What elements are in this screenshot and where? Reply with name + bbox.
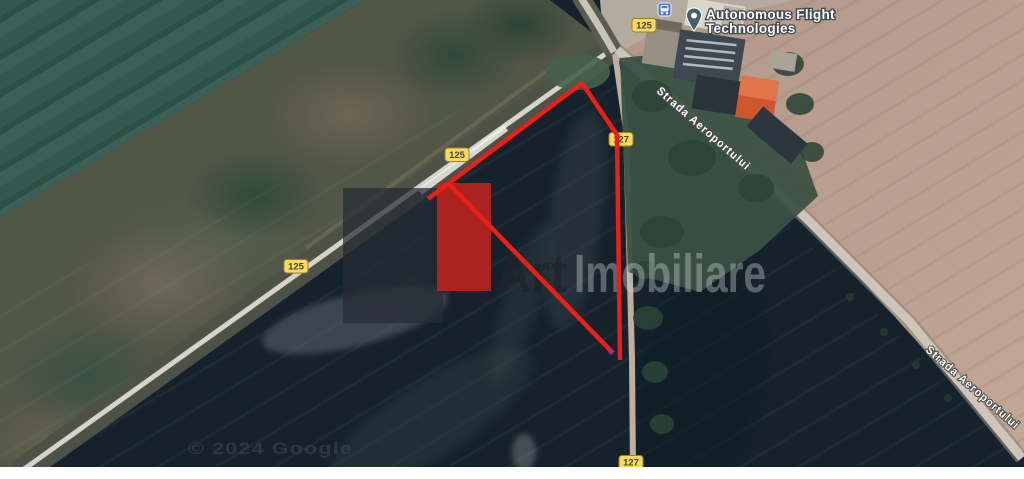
- watermark-word-imobiliare: Imobiliare: [574, 244, 766, 304]
- map-attribution: © 2024 Google: [188, 439, 353, 458]
- roads: [18, 0, 1022, 467]
- tree: [642, 361, 668, 383]
- tree: [738, 174, 774, 202]
- watermark-logo-dark-block: [343, 188, 443, 323]
- bush: [912, 361, 920, 369]
- shield-125-middle-label: 125: [449, 150, 466, 161]
- map-screenshot: Strada Aeroportului Strada Aeroportului …: [0, 0, 1024, 479]
- shield-127-bottom: 127: [619, 456, 643, 468]
- shield-125-middle: 125: [445, 148, 469, 162]
- tree: [650, 414, 674, 434]
- place-pin-icon[interactable]: [687, 8, 702, 31]
- bush: [846, 293, 854, 301]
- shield-125-lower: 125: [284, 260, 308, 274]
- letterbox-bottom: [0, 467, 1024, 479]
- shield-127-bottom-label: 127: [623, 458, 639, 468]
- shield-125-top-label: 125: [636, 21, 653, 32]
- bus-stop-icon[interactable]: [658, 3, 671, 16]
- tree: [633, 306, 663, 330]
- shield-125-top: 125: [632, 19, 656, 33]
- tree: [786, 93, 814, 115]
- street-label-strada-aeroportului-lower: Strada Aeroportului: [923, 344, 1021, 432]
- business-name-line1: Autonomous Flight: [706, 7, 835, 22]
- plot-vertex-dot: [609, 350, 614, 355]
- bush: [880, 328, 888, 336]
- business-name-line2: Technologies: [706, 21, 796, 36]
- shield-125-lower-label: 125: [288, 262, 305, 273]
- map-canvas[interactable]: Strada Aeroportului Strada Aeroportului …: [0, 0, 1024, 467]
- place-pin-dot: [691, 13, 697, 19]
- shield-127-upper: 127: [609, 133, 633, 147]
- business-poi[interactable]: Autonomous Flight Technologies: [687, 7, 836, 36]
- building-dark-roof: [692, 75, 743, 116]
- tree: [668, 140, 716, 176]
- bush: [944, 394, 952, 402]
- map-overlay: Strada Aeroportului Strada Aeroportului …: [0, 0, 1024, 467]
